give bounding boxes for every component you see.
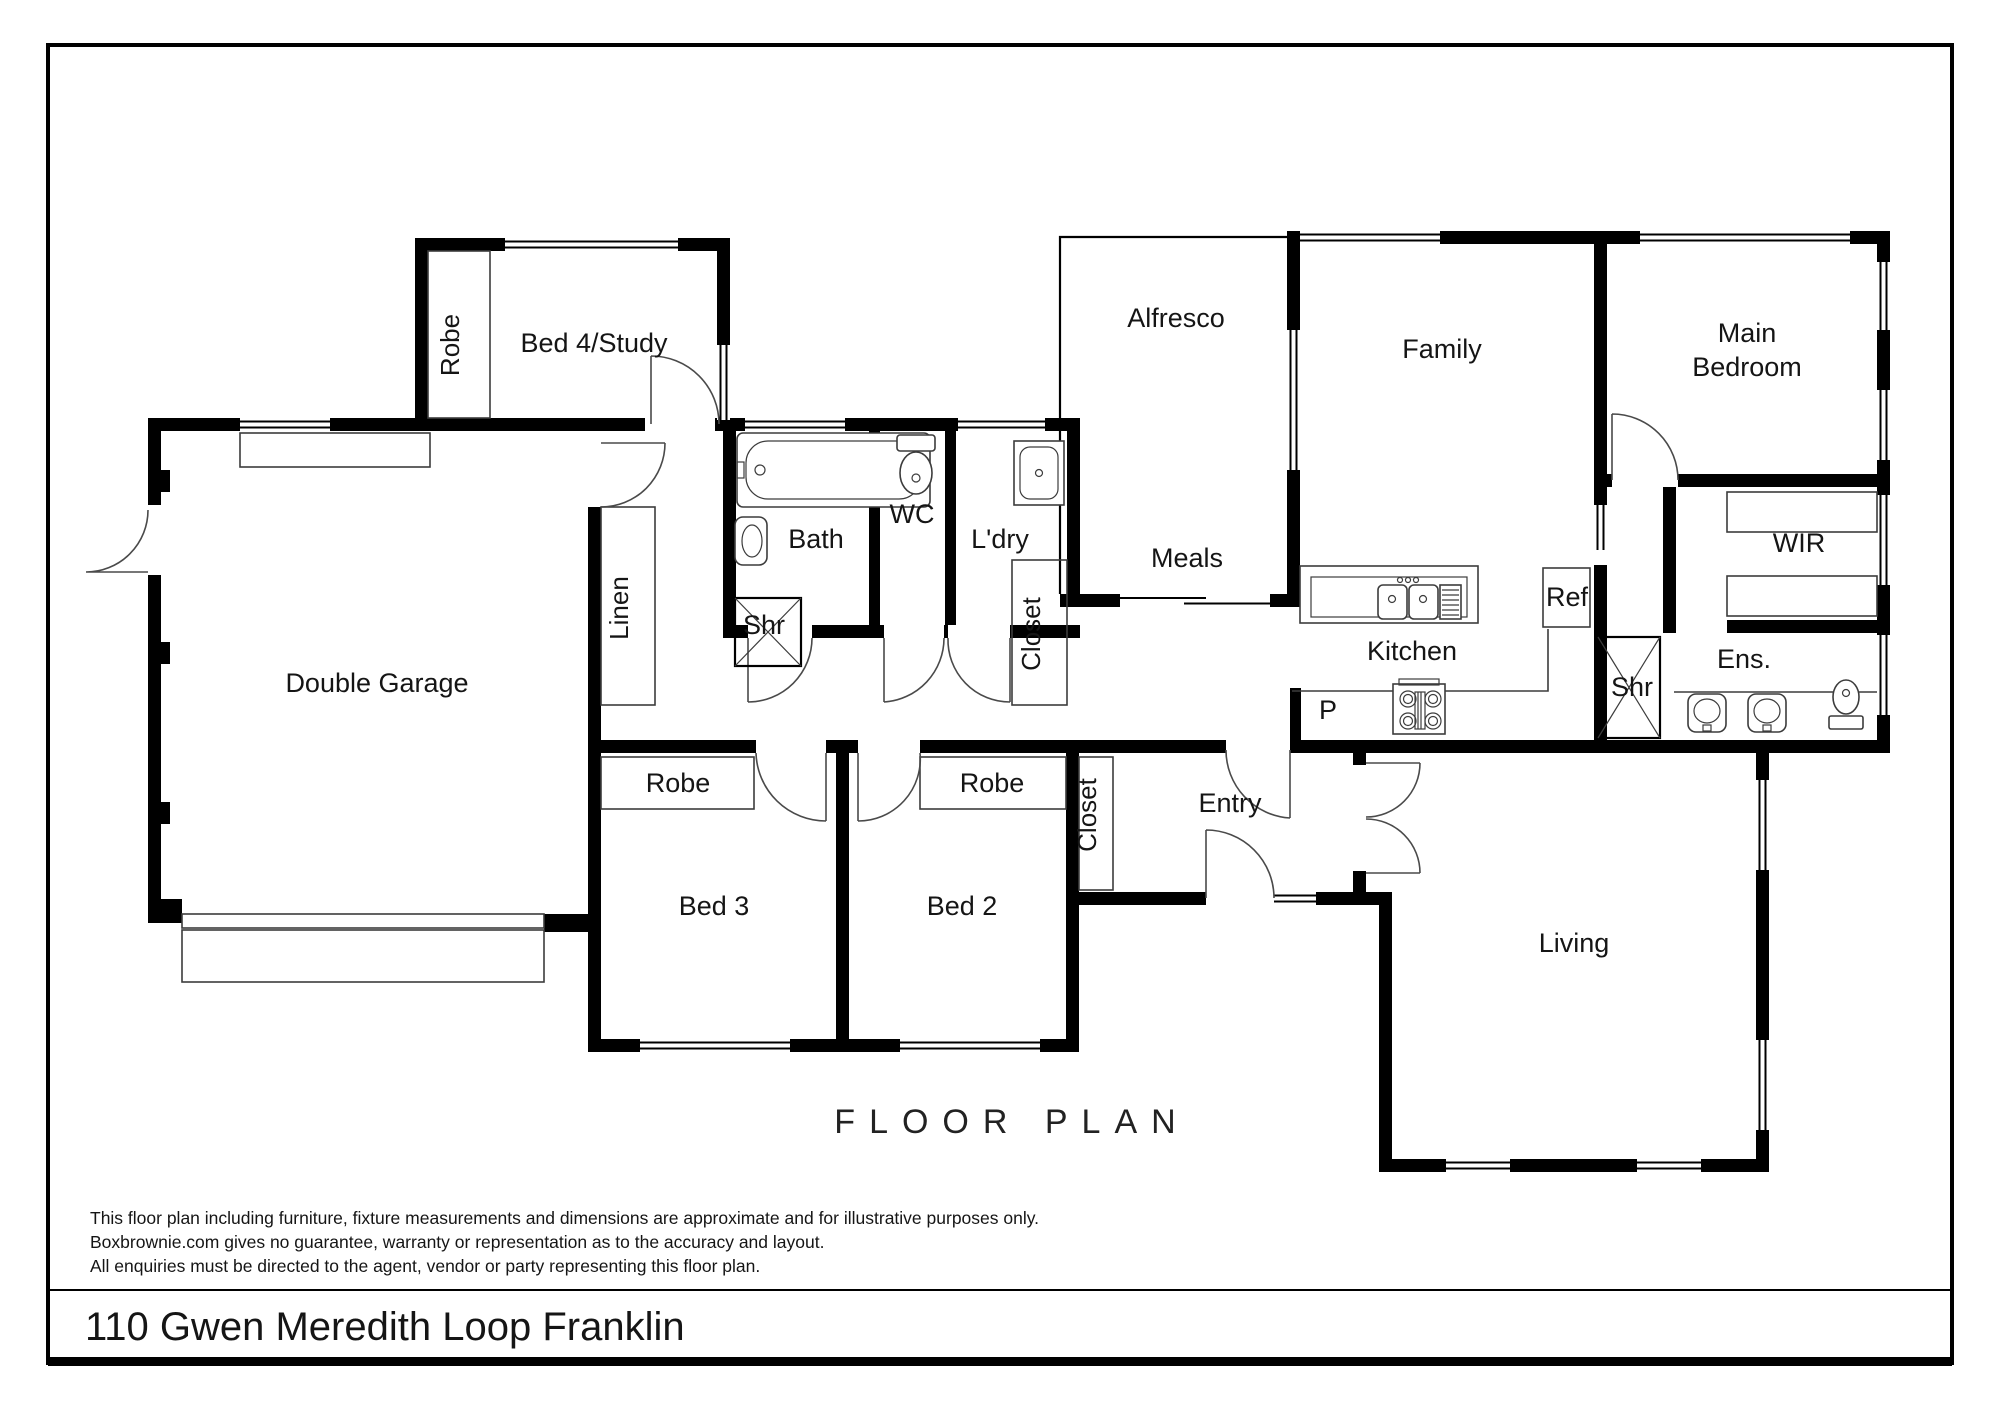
label-robe-bed2: Robe (960, 768, 1025, 798)
sliding-door-icon (1120, 594, 1270, 607)
label-kitchen: Kitchen (1367, 636, 1457, 666)
floor-plan-page: Robe Bed 4/Study Alfresco Family Main Be… (0, 0, 2000, 1414)
door-laundry (948, 638, 1010, 702)
label-pantry: P (1319, 695, 1337, 725)
label-robe-bed4: Robe (435, 314, 465, 376)
label-meals: Meals (1151, 543, 1223, 573)
label-main-bedroom-2: Bedroom (1692, 352, 1802, 382)
label-shr-ensuite: Shr (1611, 672, 1653, 702)
label-fridge: Ref (1546, 582, 1589, 612)
wir-shelf-top (1727, 492, 1877, 532)
label-wir: WIR (1773, 528, 1825, 558)
door-bath (748, 638, 812, 702)
plan-title: FLOOR PLAN (834, 1103, 1189, 1141)
basin-bath-icon (735, 517, 767, 565)
basin-ensuite-2-icon (1748, 694, 1786, 732)
label-laundry: L'dry (971, 524, 1029, 554)
disclaimer-line-3: All enquiries must be directed to the ag… (90, 1256, 760, 1276)
floor-plan-drawing: Robe Bed 4/Study Alfresco Family Main Be… (0, 0, 2000, 1414)
door-bed3 (756, 753, 826, 821)
island-sink-icon (1378, 578, 1461, 620)
label-wc: WC (890, 499, 935, 529)
label-closet-entry: Closet (1072, 777, 1102, 851)
label-linen: Linen (604, 576, 634, 640)
address-bar: 110 Gwen Meredith Loop Franklin (85, 1305, 685, 1349)
double-doors-living (1366, 763, 1420, 873)
door-wc (884, 638, 944, 702)
label-ensuite: Ens. (1717, 644, 1771, 674)
label-bed3: Bed 3 (679, 891, 750, 921)
door-front-entry (1206, 830, 1274, 898)
wir-shelf-bottom (1727, 576, 1877, 616)
footer: FLOOR PLAN This floor plan including fur… (85, 1103, 1190, 1349)
alfresco-outline (1060, 237, 1287, 594)
label-double-garage: Double Garage (285, 668, 468, 698)
laundry-tub-icon (1014, 441, 1064, 505)
disclaimer-line-2: Boxbrownie.com gives no guarantee, warra… (90, 1232, 824, 1252)
label-bed4-study: Bed 4/Study (520, 328, 668, 358)
stove-icon (1393, 679, 1445, 734)
footer-bottom-band (48, 1357, 1952, 1366)
label-bed2: Bed 2 (927, 891, 998, 921)
toilet-ensuite-icon (1829, 680, 1863, 729)
door-bed4 (651, 356, 719, 424)
door-garage-hall (601, 443, 665, 507)
label-closet-laundry: Closet (1016, 596, 1046, 670)
basin-ensuite-1-icon (1688, 694, 1726, 732)
label-robe-bed3: Robe (646, 768, 711, 798)
disclaimer-line-1: This floor plan including furniture, fix… (90, 1208, 1039, 1228)
driveway-apron (182, 930, 544, 982)
toilet-wc-icon (897, 435, 935, 494)
label-family: Family (1402, 334, 1482, 364)
label-alfresco: Alfresco (1127, 303, 1225, 333)
garage-door-panel (182, 914, 544, 928)
label-bath: Bath (788, 524, 844, 554)
label-entry: Entry (1198, 788, 1262, 818)
door-garage-side (86, 510, 148, 572)
garage-bench (240, 433, 430, 467)
label-living: Living (1539, 928, 1610, 958)
label-main-bedroom-1: Main (1718, 318, 1777, 348)
door-main-bedroom (1612, 414, 1678, 480)
label-shr-bath: Shr (743, 610, 785, 640)
door-bed2 (858, 753, 920, 821)
